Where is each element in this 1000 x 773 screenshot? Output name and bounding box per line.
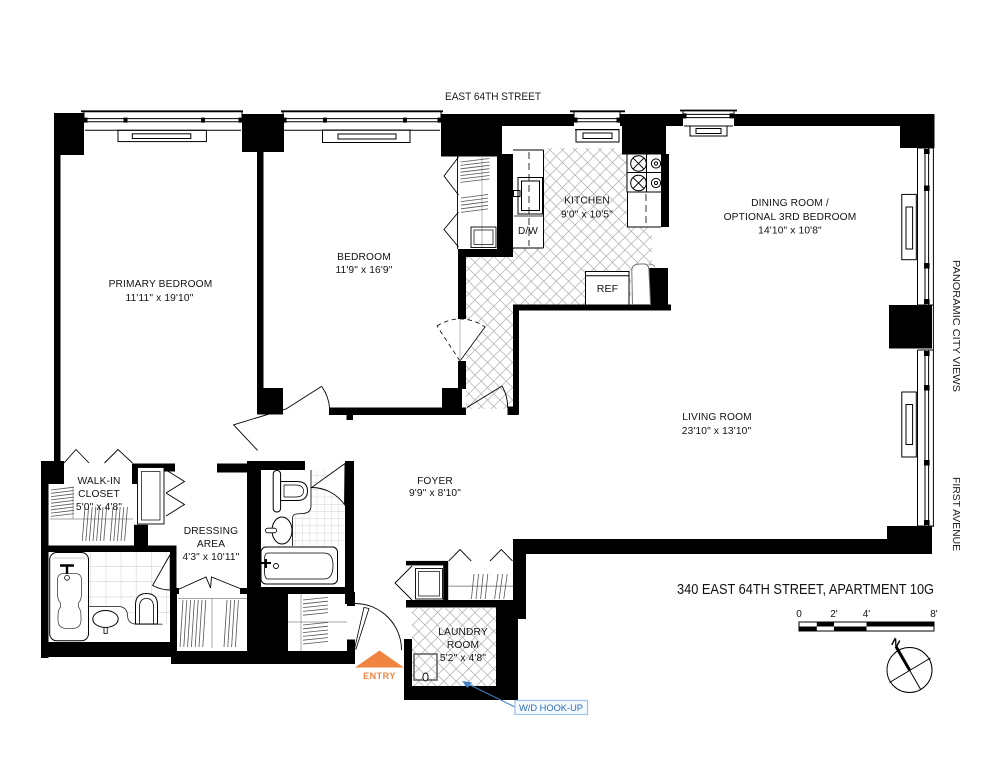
svg-text:DINING ROOM /: DINING ROOM / [751, 198, 829, 209]
svg-text:DRESSING: DRESSING [184, 526, 238, 537]
svg-text:5'0" x 4'8": 5'0" x 4'8" [76, 502, 122, 513]
svg-text:AREA: AREA [197, 539, 225, 550]
svg-text:4'3" x 10'11": 4'3" x 10'11" [182, 552, 239, 563]
svg-text:2': 2' [830, 609, 838, 620]
svg-text:PRIMARY BEDROOM: PRIMARY BEDROOM [109, 279, 213, 290]
svg-text:PANORAMIC CITY VIEWS: PANORAMIC CITY VIEWS [950, 260, 962, 392]
svg-text:FIRST AVENUE: FIRST AVENUE [950, 477, 962, 551]
svg-text:LIVING ROOM: LIVING ROOM [682, 412, 752, 423]
svg-text:W/D HOOK-UP: W/D HOOK-UP [519, 703, 583, 713]
svg-text:D/W: D/W [518, 226, 538, 237]
svg-text:WALK-IN: WALK-IN [77, 476, 120, 487]
svg-text:14'10" x 10'8": 14'10" x 10'8" [758, 226, 822, 237]
svg-text:9'9" x 8'10": 9'9" x 8'10" [409, 488, 461, 499]
svg-text:CLOSET: CLOSET [78, 489, 120, 500]
svg-text:11'9" x 16'9": 11'9" x 16'9" [335, 265, 392, 276]
svg-text:OPTIONAL 3RD BEDROOM: OPTIONAL 3RD BEDROOM [724, 212, 857, 223]
svg-text:FOYER: FOYER [417, 476, 453, 487]
svg-text:5'2" x 4'8": 5'2" x 4'8" [440, 653, 486, 664]
svg-text:EAST 64TH STREET: EAST 64TH STREET [445, 91, 541, 103]
svg-text:11'11" x 19'10": 11'11" x 19'10" [126, 293, 194, 304]
svg-text:REF: REF [597, 283, 618, 295]
svg-text:BEDROOM: BEDROOM [337, 252, 391, 263]
svg-text:ROOM: ROOM [447, 640, 479, 651]
svg-text:4': 4' [863, 609, 871, 620]
svg-text:23'10" x 13'10": 23'10" x 13'10" [682, 426, 752, 437]
svg-text:340 EAST 64TH STREET, APARTMEN: 340 EAST 64TH STREET, APARTMENT 10G [677, 582, 934, 598]
svg-text:ENTRY: ENTRY [363, 671, 396, 681]
svg-text:LAUNDRY: LAUNDRY [438, 627, 488, 638]
svg-text:0: 0 [796, 609, 802, 620]
svg-text:9'0" x 10'5": 9'0" x 10'5" [561, 210, 613, 221]
svg-text:KITCHEN: KITCHEN [564, 196, 610, 207]
svg-text:8': 8' [930, 609, 938, 620]
